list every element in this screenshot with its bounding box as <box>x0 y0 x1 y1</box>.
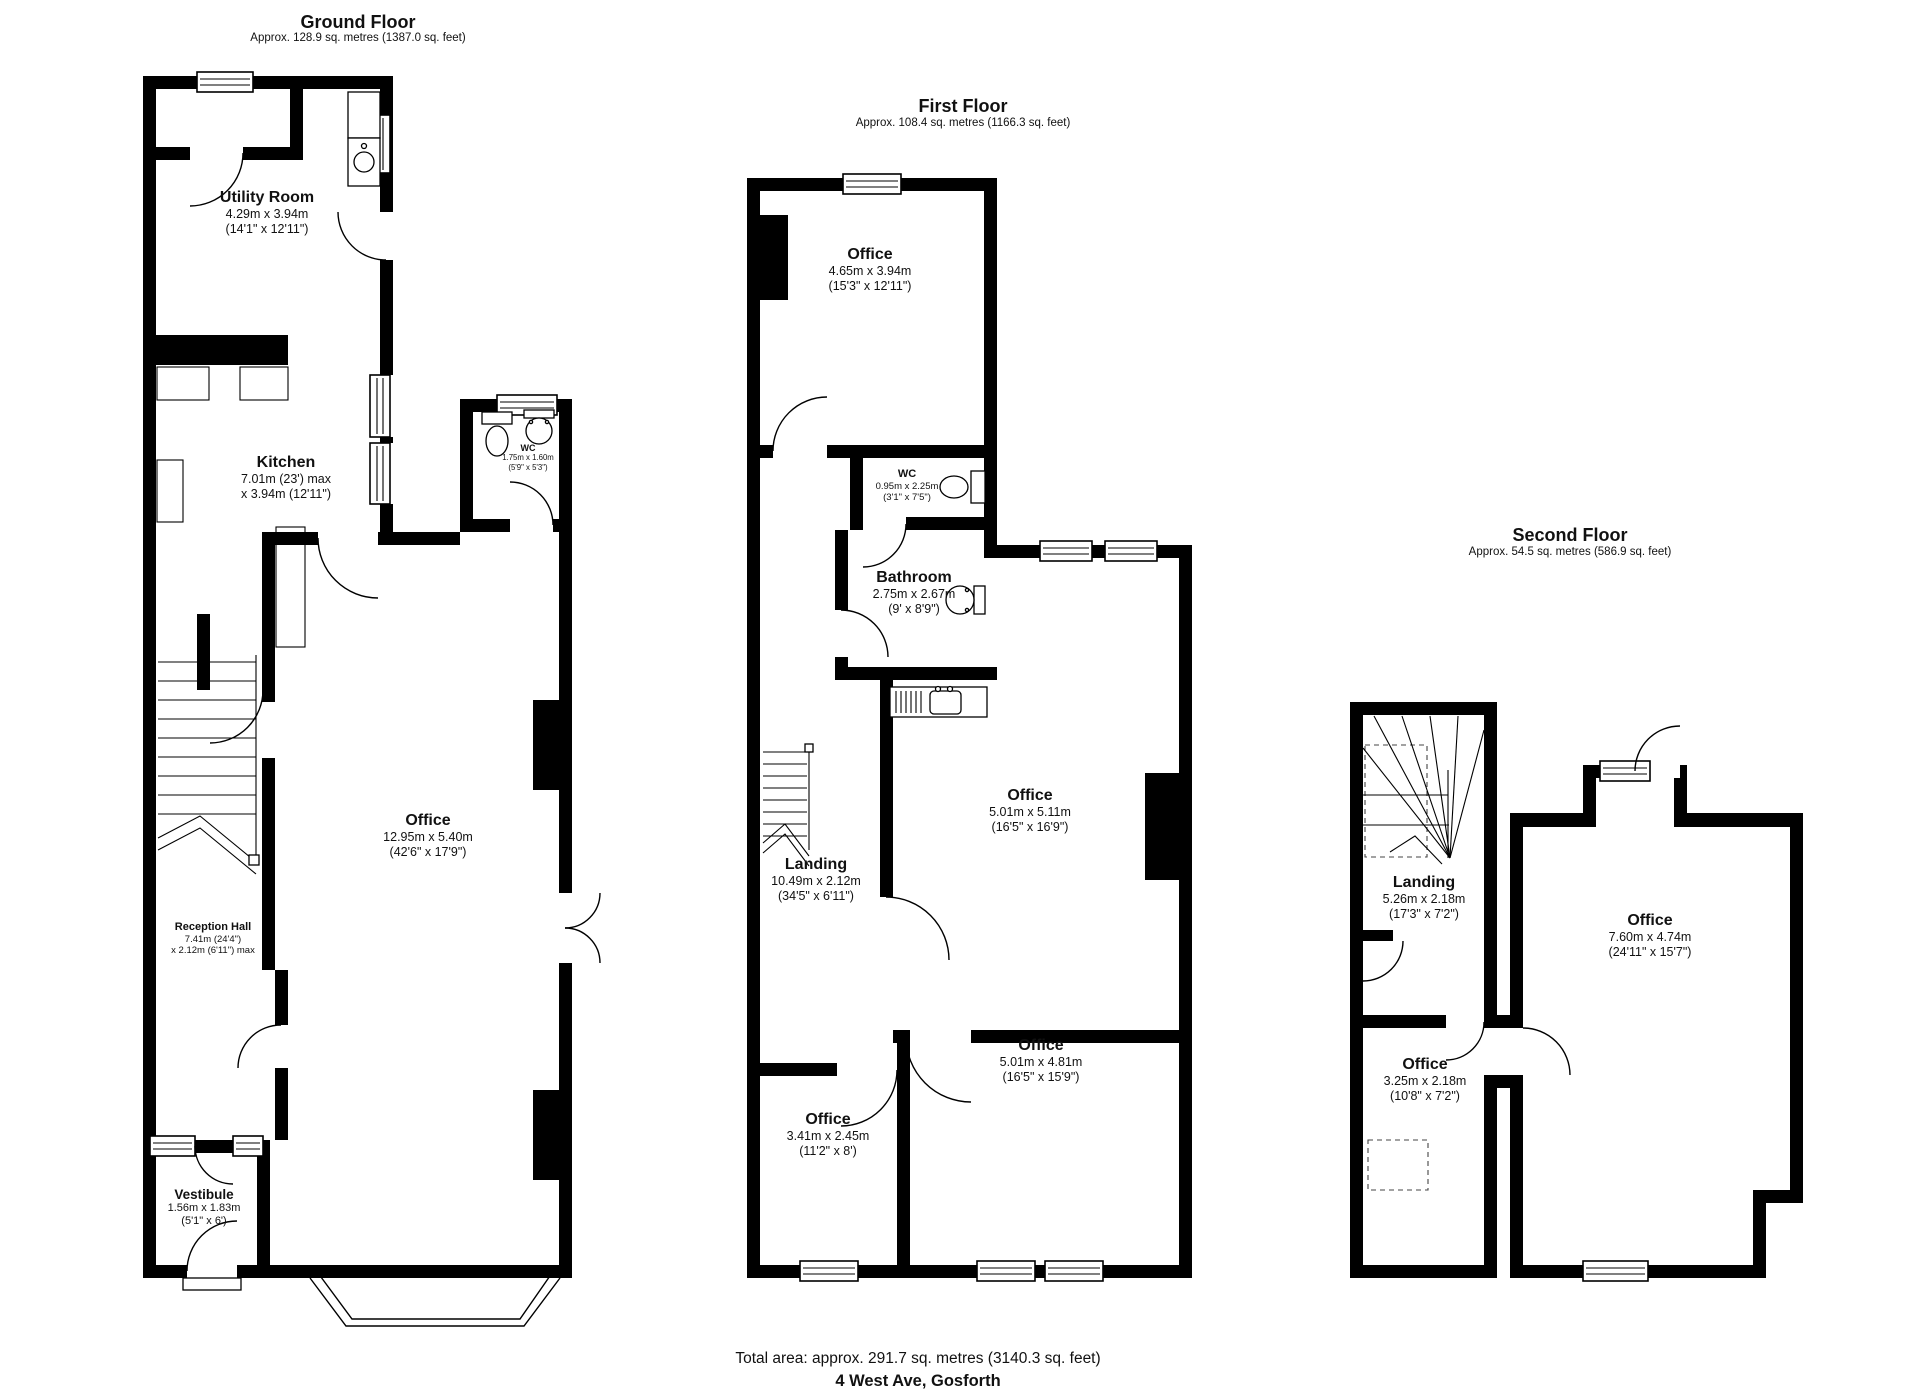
room-label-utility-room: Utility Room 4.29m x 3.94m (14'1" x 12'1… <box>207 190 327 236</box>
door-arc <box>210 690 263 743</box>
total-area-text: Total area: approx. 291.7 sq. metres (31… <box>735 1350 1100 1368</box>
door-arc <box>565 893 600 928</box>
room-label-office-ff-br: Office 5.01m x 4.81m (16'5" x 15'9") <box>966 1038 1116 1084</box>
window <box>1105 541 1157 561</box>
door-arc <box>318 538 378 598</box>
window <box>370 375 390 437</box>
door-arc <box>773 397 827 451</box>
door-arc <box>886 897 949 960</box>
window <box>150 1136 195 1156</box>
room-label-office-sf-main: Office 7.60m x 4.74m (24'11" x 15'7") <box>1570 913 1730 959</box>
stairs-icon <box>1363 716 1484 864</box>
second-floor-title: Second Floor <box>1512 525 1627 546</box>
sink-icon <box>348 92 380 186</box>
room-label-office-ff-top: Office 4.65m x 3.94m (15'3" x 12'11") <box>785 247 955 293</box>
wall-structure <box>1350 702 1803 1278</box>
window <box>1583 1261 1648 1281</box>
room-label-reception-hall: Reception Hall 7.41m (24'4") x 2.12m (6'… <box>166 922 261 956</box>
door-arc <box>510 482 553 525</box>
window <box>233 1136 263 1156</box>
door-arc <box>863 524 906 567</box>
door-arc <box>841 610 888 657</box>
door-arc <box>565 928 600 963</box>
room-label-landing-ff: Landing 10.49m x 2.12m (34'5" x 6'11") <box>751 857 881 903</box>
window <box>370 443 390 504</box>
bay-window <box>310 1273 560 1326</box>
window <box>1045 1261 1103 1281</box>
door-arc <box>1523 1028 1570 1075</box>
door-arc <box>338 212 386 260</box>
kitchen-counter <box>157 367 305 647</box>
address-text: 4 West Ave, Gosforth <box>835 1372 1000 1391</box>
window <box>977 1261 1035 1281</box>
ground-floor-title: Ground Floor <box>301 12 416 33</box>
door-arc <box>906 1037 971 1102</box>
room-label-office-ground: Office 12.95m x 5.40m (42'6" x 17'9") <box>343 813 513 859</box>
floorplan-page: Ground Floor Approx. 128.9 sq. metres (1… <box>0 0 1920 1396</box>
room-label-kitchen: Kitchen 7.01m (23') max x 3.94m (12'11") <box>201 455 371 501</box>
room-label-office-sf-small: Office 3.25m x 2.18m (10'8" x 7'2") <box>1360 1057 1490 1103</box>
basin-icon <box>524 410 554 444</box>
room-label-office-ff-bl: Office 3.41m x 2.45m (11'2" x 8') <box>758 1112 898 1158</box>
first-floor-area: Approx. 108.4 sq. metres (1166.3 sq. fee… <box>856 117 1071 129</box>
entrance-step <box>183 1278 241 1290</box>
window <box>843 174 901 194</box>
window <box>197 72 253 92</box>
ground-floor-plan <box>143 72 600 1326</box>
sink-icon <box>890 687 987 718</box>
room-label-vestibule: Vestibule 1.56m x 1.83m (5'1" x 6') <box>139 1188 269 1228</box>
room-label-office-ff-mid: Office 5.01m x 5.11m (16'5" x 16'9") <box>945 788 1115 834</box>
wall-structure <box>143 76 572 1278</box>
window <box>1600 761 1650 781</box>
door-arc <box>1363 941 1403 981</box>
room-label-wc-ground: WC 1.75m x 1.60m (5'9" x 5'3") <box>488 444 568 472</box>
first-floor-title: First Floor <box>919 96 1008 117</box>
eaves-storage <box>1368 1140 1428 1190</box>
room-label-bathroom: Bathroom 2.75m x 2.67m (9' x 8'9") <box>839 570 989 616</box>
window <box>1040 541 1092 561</box>
door-arc <box>1446 1022 1484 1060</box>
stairs-icon <box>763 744 813 866</box>
room-label-landing-sf: Landing 5.26m x 2.18m (17'3" x 7'2") <box>1359 875 1489 921</box>
second-floor-area: Approx. 54.5 sq. metres (586.9 sq. feet) <box>1469 546 1672 558</box>
second-floor-plan <box>1350 702 1803 1281</box>
door-arc <box>238 1025 281 1068</box>
ground-floor-area: Approx. 128.9 sq. metres (1387.0 sq. fee… <box>250 32 465 44</box>
room-label-wc-ff: WC 0.95m x 2.25m (3'1" x 7'5") <box>852 469 962 503</box>
window <box>800 1261 858 1281</box>
door-arc <box>187 1221 237 1271</box>
